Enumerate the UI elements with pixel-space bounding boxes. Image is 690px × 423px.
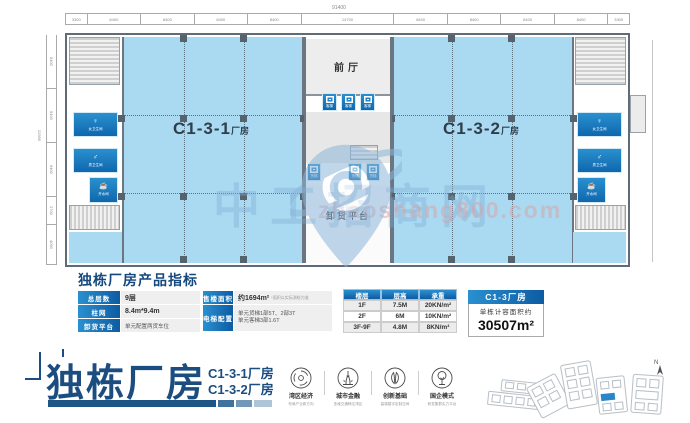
wc-women-room: ♀ 女卫生间 [577, 112, 622, 137]
elevator-icon [345, 96, 353, 103]
spec-label: 柱网 [78, 305, 120, 318]
hall-c1-3-1 [122, 37, 304, 263]
dim-value: 14700 [302, 14, 395, 24]
table-cell: 8KN/m² [419, 322, 457, 333]
building-cluster [596, 376, 628, 415]
dim-value: 2700 [47, 197, 56, 225]
floor-height-table: 楼层 层高 承重 1F 7.5M 20KN/m² 2F 6M 10KN/m² 3… [343, 289, 457, 333]
table-cell: 3F-9F [343, 322, 381, 333]
grid-line [394, 193, 572, 194]
spec-value: 8.4m*9.4m [121, 305, 200, 318]
dim-value: 8400 [555, 14, 608, 24]
tree-icon [431, 367, 453, 389]
highlighted-building [601, 393, 616, 401]
building-cluster [631, 374, 664, 414]
grid-line [512, 39, 513, 261]
feature-item: 国企模式 研发集群实力平台 [421, 367, 463, 407]
grid-line [244, 39, 245, 261]
cup-icon: ☕ [587, 183, 596, 191]
page-subtitles: C1-3-1厂房 C1-3-2厂房 [208, 366, 274, 398]
grid-line [124, 193, 302, 194]
dim-value: 8400 [394, 14, 447, 24]
female-icon: ♀ [597, 118, 602, 126]
dim-value: 8400 [88, 14, 141, 24]
dimension-line-right [652, 40, 653, 262]
feature-item: 城市金融 多维交通畅达湾区 [327, 367, 369, 407]
dim-value: 8400 [248, 14, 301, 24]
spec-table-mid: 售楼面积 约1694m² *面积以实际测绘为准 电梯配置 单元货梯1部5T、2部… [203, 291, 332, 331]
divider [371, 371, 372, 395]
spec-value: 单元配置两货车位 [121, 319, 200, 332]
dim-value: 8400 [195, 14, 248, 24]
dim-value: 5400 [47, 89, 56, 143]
passenger-elevator: 客梯 [322, 93, 337, 111]
spec-label: 售楼面积 [203, 291, 233, 304]
column-header: 承重 [419, 289, 457, 300]
divider [418, 371, 419, 395]
grid-line [124, 115, 302, 116]
column-header: 层高 [381, 289, 419, 300]
divider [324, 371, 325, 395]
wings-icon [384, 367, 406, 389]
grid-line [452, 39, 453, 261]
area-card-label: 单栋计容面积约 [469, 306, 543, 316]
indicators-title: 独栋厂房产品指标 [78, 270, 198, 290]
dim-value: 5400 [47, 143, 56, 197]
unloading-platform: 卸货平台 [306, 185, 390, 263]
hall-extension-right [573, 232, 626, 263]
central-core: 前厅 客梯 客梯 客梯 货梯 货梯 [304, 37, 392, 263]
male-icon: ♂ [597, 154, 602, 162]
landmark-icon [337, 367, 359, 389]
spec-value: 9层 [121, 291, 200, 304]
table-cell: 7.5M [381, 300, 419, 311]
dim-value: 4050 [47, 225, 56, 265]
brochure-page: 91400 3300 8400 8400 8400 8400 14700 840… [0, 0, 690, 423]
feature-list: 湾区经济 布局产业新方向 城市金融 多维交通畅达湾区 [280, 367, 463, 407]
table-cell: 4.8M [381, 322, 419, 333]
spec-value: 约1694m² *面积以实际测绘为准 [234, 291, 332, 304]
freight-elevator: 货梯 [348, 163, 362, 181]
area-card-value: 30507m² [469, 317, 543, 333]
dimension-strip-top: 3300 8400 8400 8400 8400 14700 8400 8400… [65, 13, 630, 25]
corner-bracket [39, 352, 41, 380]
stairwell [575, 205, 626, 230]
table-cell: 1F [343, 300, 381, 311]
male-icon: ♂ [93, 154, 98, 162]
grid-line [184, 39, 185, 261]
hall-left-label: C1-3-1厂房 [173, 119, 249, 139]
dim-value: 8400 [141, 14, 194, 24]
table-cell: 10KN/m² [419, 311, 457, 322]
wc-men-room: ♂ 男卫生间 [73, 148, 118, 173]
grid-line [394, 115, 572, 116]
hall-right-label: C1-3-2厂房 [443, 119, 519, 139]
wc-women-room: ♀ 女卫生间 [73, 112, 118, 137]
front-hall: 前厅 [306, 39, 390, 96]
passenger-elevator: 客梯 [360, 93, 375, 111]
water-room: ☕ 开水间 [89, 177, 118, 203]
cup-icon: ☕ [99, 183, 108, 191]
dimension-total-left: 22950 [37, 130, 42, 141]
stairwell [69, 37, 120, 85]
hall-extension-left [69, 232, 122, 263]
elevator-icon [364, 96, 372, 103]
dim-value: 3300 [65, 14, 88, 24]
dimension-strip-left: 5400 5400 5400 2700 4050 [46, 35, 57, 265]
spec-value: 单元货梯1部5T、2部3T 单元客梯3部1.6T [234, 305, 332, 331]
elevator-icon [369, 166, 377, 173]
table-cell: 2F [343, 311, 381, 322]
dim-value: 5400 [47, 35, 56, 89]
north-arrow-icon: N [654, 360, 663, 375]
area-card-title: C1-3厂房 [468, 290, 544, 304]
hall-c1-3-2 [392, 37, 574, 263]
spec-label: 卸货平台 [78, 319, 120, 332]
stairwell [69, 205, 120, 230]
water-room: ☕ 开水间 [577, 177, 606, 203]
page-title: 独栋厂房 [46, 352, 206, 407]
column-grid [118, 115, 125, 122]
table-cell: 20KN/m² [419, 300, 457, 311]
area-note: *面积以实际测绘为准 [271, 295, 309, 301]
aperture-icon [290, 367, 312, 389]
core-stair [350, 145, 378, 160]
exterior-stair [630, 95, 646, 133]
column-header: 楼层 [343, 289, 381, 300]
feature-item: 湾区经济 布局产业新方向 [280, 367, 322, 407]
spec-table-left: 总层数 9层 柱网 8.4m*9.4m 卸货平台 单元配置两货车位 [78, 291, 200, 332]
dim-value: 8400 [501, 14, 554, 24]
spec-label: 电梯配置 [203, 305, 233, 331]
female-icon: ♀ [93, 118, 98, 126]
site-key-plan: N [486, 357, 686, 421]
stairwell [575, 37, 626, 85]
feature-item: 创新基础 高端楼宇定制空间 [374, 367, 416, 407]
dim-value: 8400 [448, 14, 501, 24]
freight-elevator: 货梯 [366, 163, 380, 181]
svg-text:N: N [654, 360, 658, 366]
floor-plan: C1-3-1厂房 C1-3-2厂房 ♀ 女卫生间 ♂ 男卫生间 ☕ 开水间 ♀ … [65, 33, 630, 267]
dim-value: 3300 [608, 14, 630, 24]
wc-men-room: ♂ 男卫生间 [577, 148, 622, 173]
elevator-icon [351, 166, 359, 173]
table-cell: 6M [381, 311, 419, 322]
freight-elevator: 货梯 [307, 163, 321, 181]
gradient-bar [48, 400, 272, 407]
corner-bracket [25, 378, 41, 380]
area-card: C1-3厂房 单栋计容面积约 30507m² [468, 290, 544, 337]
dimension-total-top: 91400 [332, 5, 346, 11]
elevator-icon [310, 166, 318, 173]
spec-label: 总层数 [78, 291, 120, 304]
elevator-icon [326, 96, 334, 103]
passenger-elevator: 客梯 [341, 93, 356, 111]
